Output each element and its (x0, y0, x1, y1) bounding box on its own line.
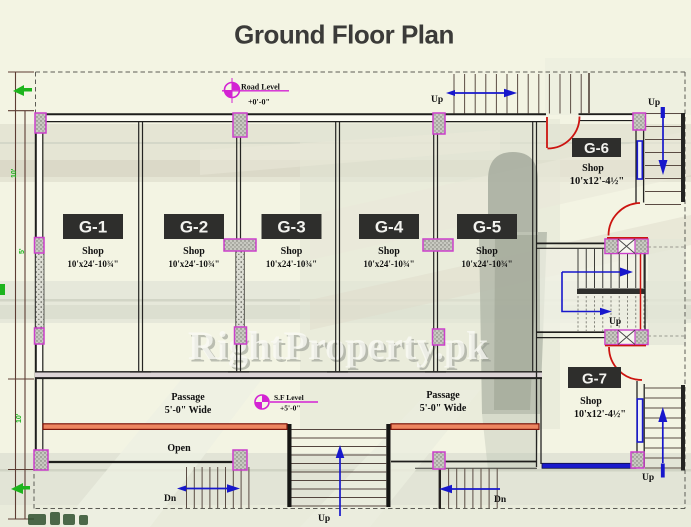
svg-text:10'x12'-4½": 10'x12'-4½" (574, 409, 626, 420)
svg-text:Road Level: Road Level (241, 83, 281, 92)
svg-text:Passage: Passage (426, 390, 460, 401)
svg-text:10'x24'-10¾": 10'x24'-10¾" (168, 259, 219, 269)
svg-text:10'x24'-10¾": 10'x24'-10¾" (461, 259, 512, 269)
svg-text:Passage: Passage (171, 392, 205, 403)
svg-text:10': 10' (16, 413, 23, 423)
svg-text:Shop: Shop (378, 246, 400, 257)
svg-text:10': 10' (11, 168, 18, 178)
svg-text:Up: Up (431, 95, 443, 105)
svg-text:Up: Up (642, 473, 654, 483)
svg-text:Up: Up (648, 98, 660, 108)
svg-text:G-1: G-1 (79, 218, 107, 237)
svg-text:Up: Up (609, 317, 621, 327)
svg-text:+0'-0": +0'-0" (248, 98, 270, 107)
svg-text:5': 5' (19, 248, 26, 254)
svg-text:G-6: G-6 (584, 140, 609, 157)
svg-text:10'x24'-10¾": 10'x24'-10¾" (266, 259, 317, 269)
svg-text:G-2: G-2 (180, 218, 208, 237)
svg-text:+5'-0": +5'-0" (280, 404, 301, 413)
svg-text:10'x24'-10¾": 10'x24'-10¾" (363, 259, 414, 269)
svg-text:Up: Up (318, 514, 330, 524)
svg-text:Shop: Shop (183, 246, 205, 257)
svg-text:S.F Level: S.F Level (274, 393, 304, 402)
svg-text:Shop: Shop (580, 396, 602, 407)
svg-text:G-3: G-3 (277, 218, 305, 237)
svg-text:Dn: Dn (164, 494, 177, 504)
svg-text:G-4: G-4 (375, 218, 404, 237)
svg-text:Dn: Dn (494, 495, 507, 505)
svg-text:10'x24'-10¾": 10'x24'-10¾" (67, 259, 118, 269)
svg-text:5'-0" Wide: 5'-0" Wide (420, 403, 467, 414)
svg-text:Shop: Shop (82, 246, 104, 257)
svg-text:Ground Floor Plan: Ground Floor Plan (234, 20, 454, 50)
svg-text:Shop: Shop (281, 246, 303, 257)
svg-text:G-7: G-7 (582, 371, 607, 388)
svg-text:Shop: Shop (582, 163, 604, 174)
svg-text:Open: Open (167, 443, 191, 454)
svg-text:5'-0" Wide: 5'-0" Wide (165, 405, 212, 416)
svg-text:G-5: G-5 (473, 218, 501, 237)
svg-text:10'x12'-4½": 10'x12'-4½" (570, 176, 625, 187)
svg-text:Shop: Shop (476, 246, 498, 257)
